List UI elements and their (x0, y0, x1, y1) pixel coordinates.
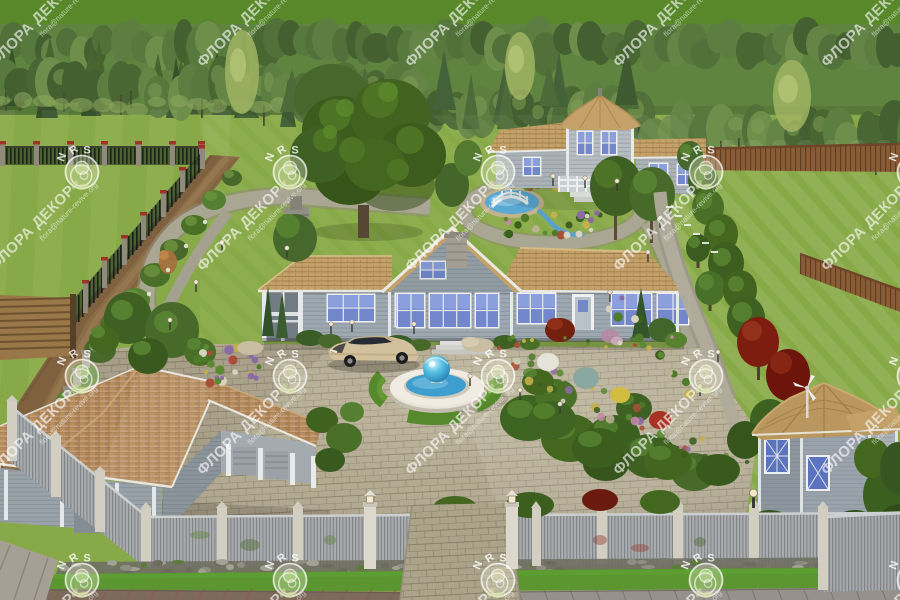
svg-text:S: S (291, 349, 298, 361)
svg-text:S: S (707, 145, 714, 157)
svg-text:S: S (707, 553, 714, 565)
svg-text:S: S (83, 553, 90, 565)
svg-text:S: S (499, 145, 506, 157)
svg-text:S: S (83, 145, 90, 157)
svg-text:S: S (707, 349, 714, 361)
svg-text:S: S (499, 553, 506, 565)
svg-text:S: S (499, 349, 506, 361)
svg-text:S: S (291, 553, 298, 565)
svg-text:S: S (83, 349, 90, 361)
svg-text:S: S (291, 145, 298, 157)
